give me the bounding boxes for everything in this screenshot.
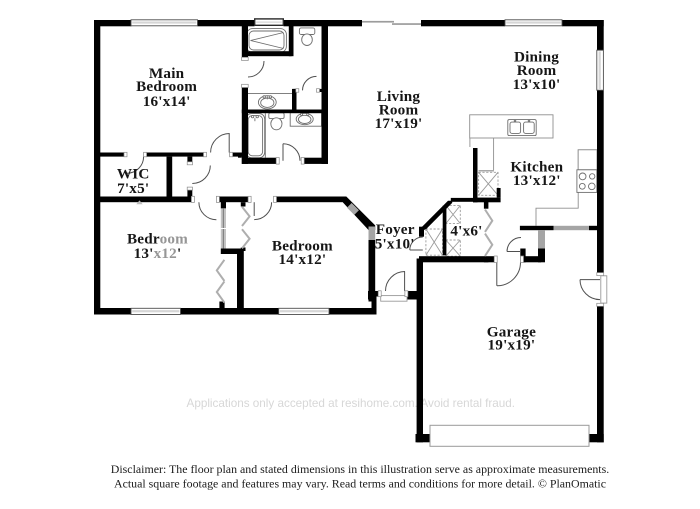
svg-text:13'x12': 13'x12' (134, 245, 182, 262)
svg-text:14'x12': 14'x12' (278, 251, 326, 268)
svg-text:Applications only accepted at: Applications only accepted at resihome.c… (187, 397, 516, 410)
svg-text:13'x10': 13'x10' (513, 76, 561, 93)
svg-text:13'x12': 13'x12' (513, 172, 561, 189)
svg-text:5'x10': 5'x10' (375, 235, 415, 252)
svg-text:Disclaimer: The floor plan and: Disclaimer: The floor plan and stated di… (111, 462, 609, 476)
svg-text:4'x6': 4'x6' (450, 223, 482, 240)
svg-text:Actual square footage and feat: Actual square footage and features may v… (114, 477, 606, 491)
svg-text:17'x19': 17'x19' (375, 115, 423, 132)
svg-text:19'x19': 19'x19' (487, 336, 535, 353)
svg-text:16'x14': 16'x14' (143, 93, 191, 110)
svg-text:7'x5': 7'x5' (117, 180, 149, 197)
